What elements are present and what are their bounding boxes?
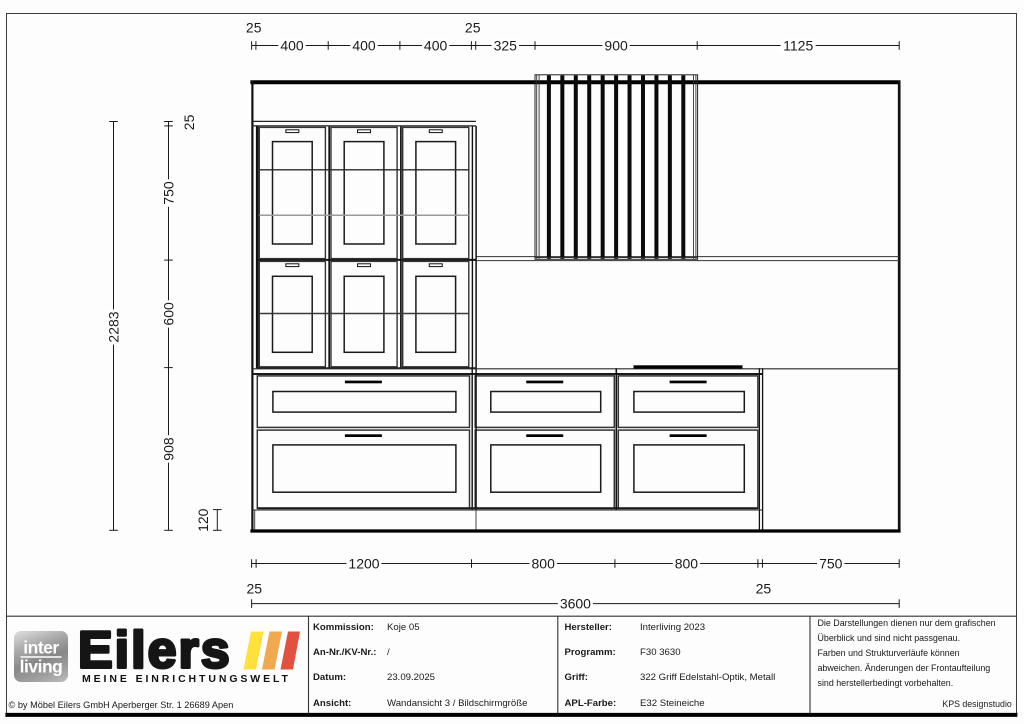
svg-text:800: 800 [675, 556, 699, 572]
svg-text:25: 25 [247, 581, 263, 597]
svg-text:750: 750 [819, 556, 843, 572]
svg-text:600: 600 [161, 302, 177, 326]
svg-text:325: 325 [494, 38, 518, 54]
svg-text:750: 750 [161, 181, 177, 205]
svg-text:800: 800 [532, 556, 556, 572]
svg-text:Eilers: Eilers [78, 622, 232, 680]
svg-text:908: 908 [161, 437, 177, 461]
svg-text:1125: 1125 [783, 38, 813, 54]
svg-text:900: 900 [604, 38, 628, 54]
svg-text:400: 400 [424, 38, 448, 54]
svg-text:1200: 1200 [348, 556, 379, 572]
svg-text:2283: 2283 [106, 311, 122, 342]
svg-text:living: living [19, 656, 62, 676]
svg-text:25: 25 [465, 20, 481, 36]
svg-text:25: 25 [181, 114, 197, 130]
svg-text:25: 25 [246, 20, 262, 36]
svg-text:3600: 3600 [560, 596, 591, 612]
svg-text:400: 400 [352, 38, 376, 54]
svg-text:25: 25 [756, 581, 772, 597]
svg-text:inter: inter [23, 637, 59, 657]
svg-text:400: 400 [280, 38, 304, 54]
svg-text:120: 120 [195, 508, 211, 532]
